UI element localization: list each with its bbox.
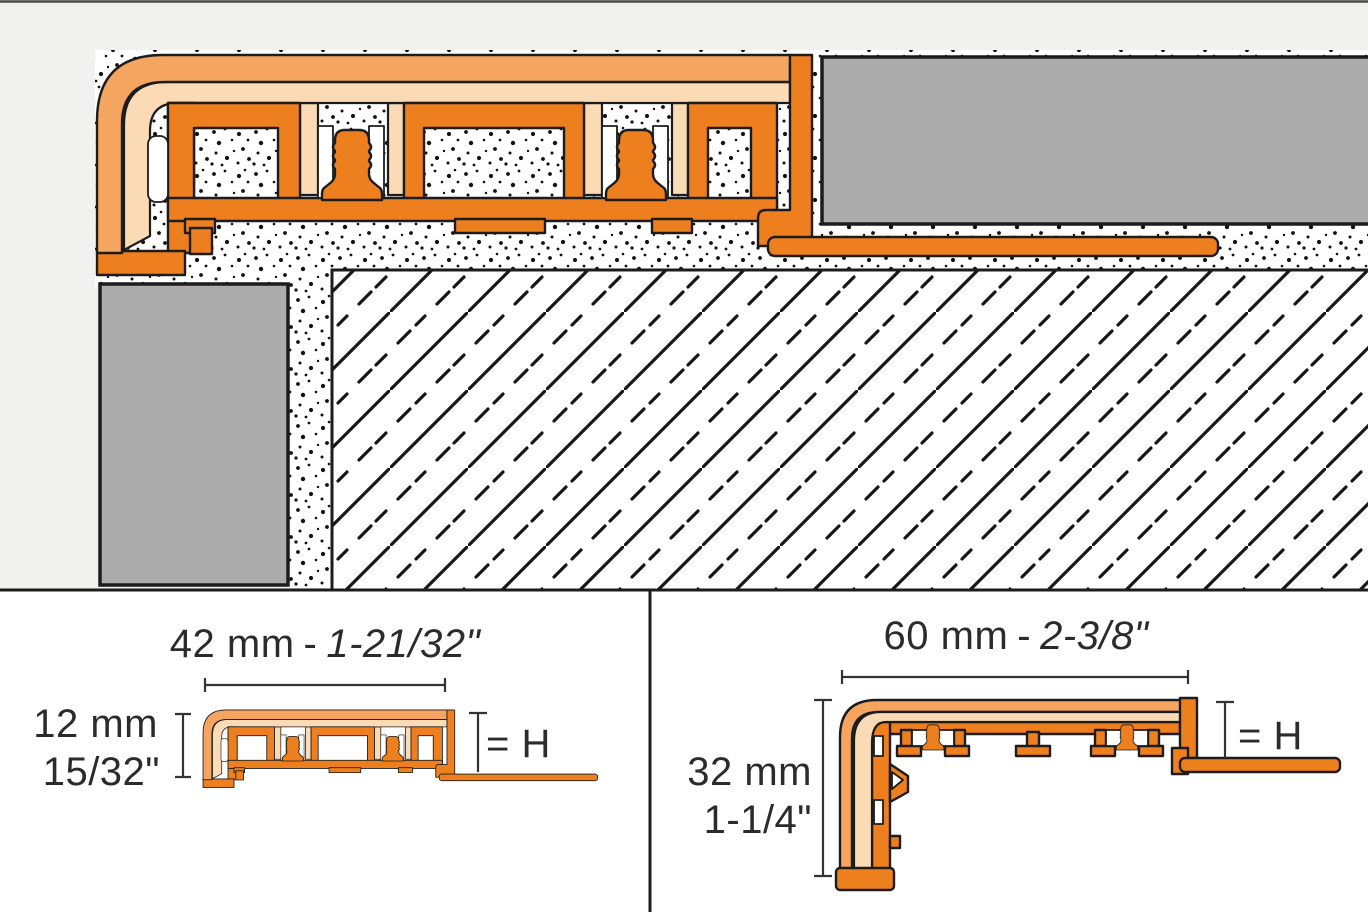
height-metric-label-right: 32 mm: [630, 752, 812, 792]
staple-module: [897, 725, 969, 756]
height-reference-right: = H: [1238, 716, 1303, 756]
leg-foot: [836, 868, 894, 890]
tile-top: [822, 57, 1368, 224]
width-dimension-label-right: 60 mm-2-3/8": [884, 616, 1149, 656]
dimension-view-right: [814, 670, 1340, 890]
width-dimension-label-left: 42 mm-1-21/32": [170, 624, 480, 664]
mortar-stipple: [288, 270, 332, 588]
t-anchor: [1016, 732, 1050, 756]
height-reference-left: = H: [486, 724, 551, 764]
height-metric-label-left: 12 mm: [0, 704, 158, 744]
substrate-hatch: [332, 270, 1368, 590]
staple-module: [1091, 725, 1163, 756]
diagram-stage: 42 mm-1-21/32" 12 mm 15/32" = H 60 mm-2-…: [0, 0, 1368, 912]
rail-slot: [874, 800, 883, 824]
rail-slot: [874, 736, 883, 756]
small-anchor-tab: [890, 836, 900, 848]
height-imperial-label-left: 15/32": [0, 752, 160, 792]
tile-riser: [100, 284, 288, 585]
anchoring-leg: [1180, 758, 1340, 772]
height-imperial-label-right: 1-1/4": [630, 800, 812, 840]
main-installation-diagram: [0, 0, 1368, 590]
